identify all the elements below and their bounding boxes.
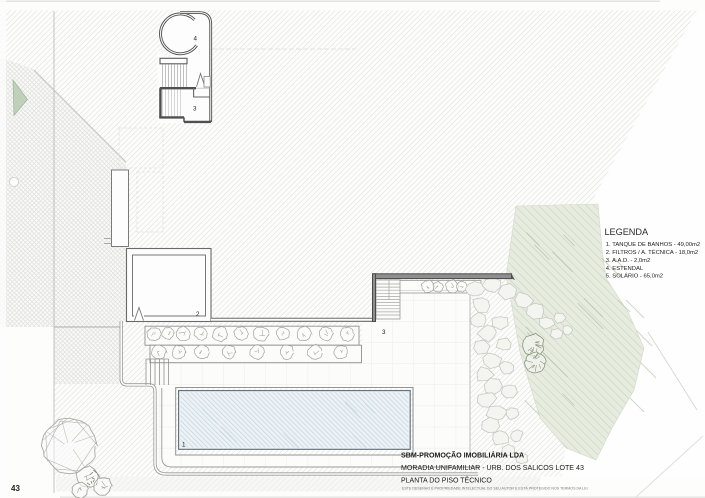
svg-text:3. A.A.D. - 2,0m2: 3. A.A.D. - 2,0m2 — [606, 258, 651, 264]
svg-text:4. ESTENDAL: 4. ESTENDAL — [606, 266, 644, 272]
svg-text:3: 3 — [382, 329, 386, 336]
svg-text:2. FILTROS / A. TÉCNICA - 18,0: 2. FILTROS / A. TÉCNICA - 18,0m2 — [606, 249, 698, 256]
svg-text:2: 2 — [196, 311, 200, 318]
svg-text:5. SOLÁRIO - 65,0m2: 5. SOLÁRIO - 65,0m2 — [606, 273, 663, 280]
svg-text:4: 4 — [194, 36, 198, 43]
svg-text:3: 3 — [193, 106, 197, 113]
svg-text:1: 1 — [182, 442, 186, 449]
svg-text:LEGENDA: LEGENDA — [605, 227, 649, 237]
svg-text:1. TANQUE DE BANHOS - 49,00m2: 1. TANQUE DE BANHOS - 49,00m2 — [606, 242, 700, 248]
svg-text:ESTE DESENHO É PROPRIEDADE INT: ESTE DESENHO É PROPRIEDADE INTELECTUAL D… — [402, 486, 588, 491]
svg-text:SBM-PROMOÇÃO IMOBILIÁRIA LDA: SBM-PROMOÇÃO IMOBILIÁRIA LDA — [401, 451, 524, 460]
svg-text:MORADIA UNIFAMILIAR - URB. DOS: MORADIA UNIFAMILIAR - URB. DOS SALICOS L… — [401, 464, 584, 472]
svg-text:43: 43 — [11, 484, 20, 493]
svg-text:PLANTA DO PISO TÉCNICO: PLANTA DO PISO TÉCNICO — [401, 475, 492, 484]
